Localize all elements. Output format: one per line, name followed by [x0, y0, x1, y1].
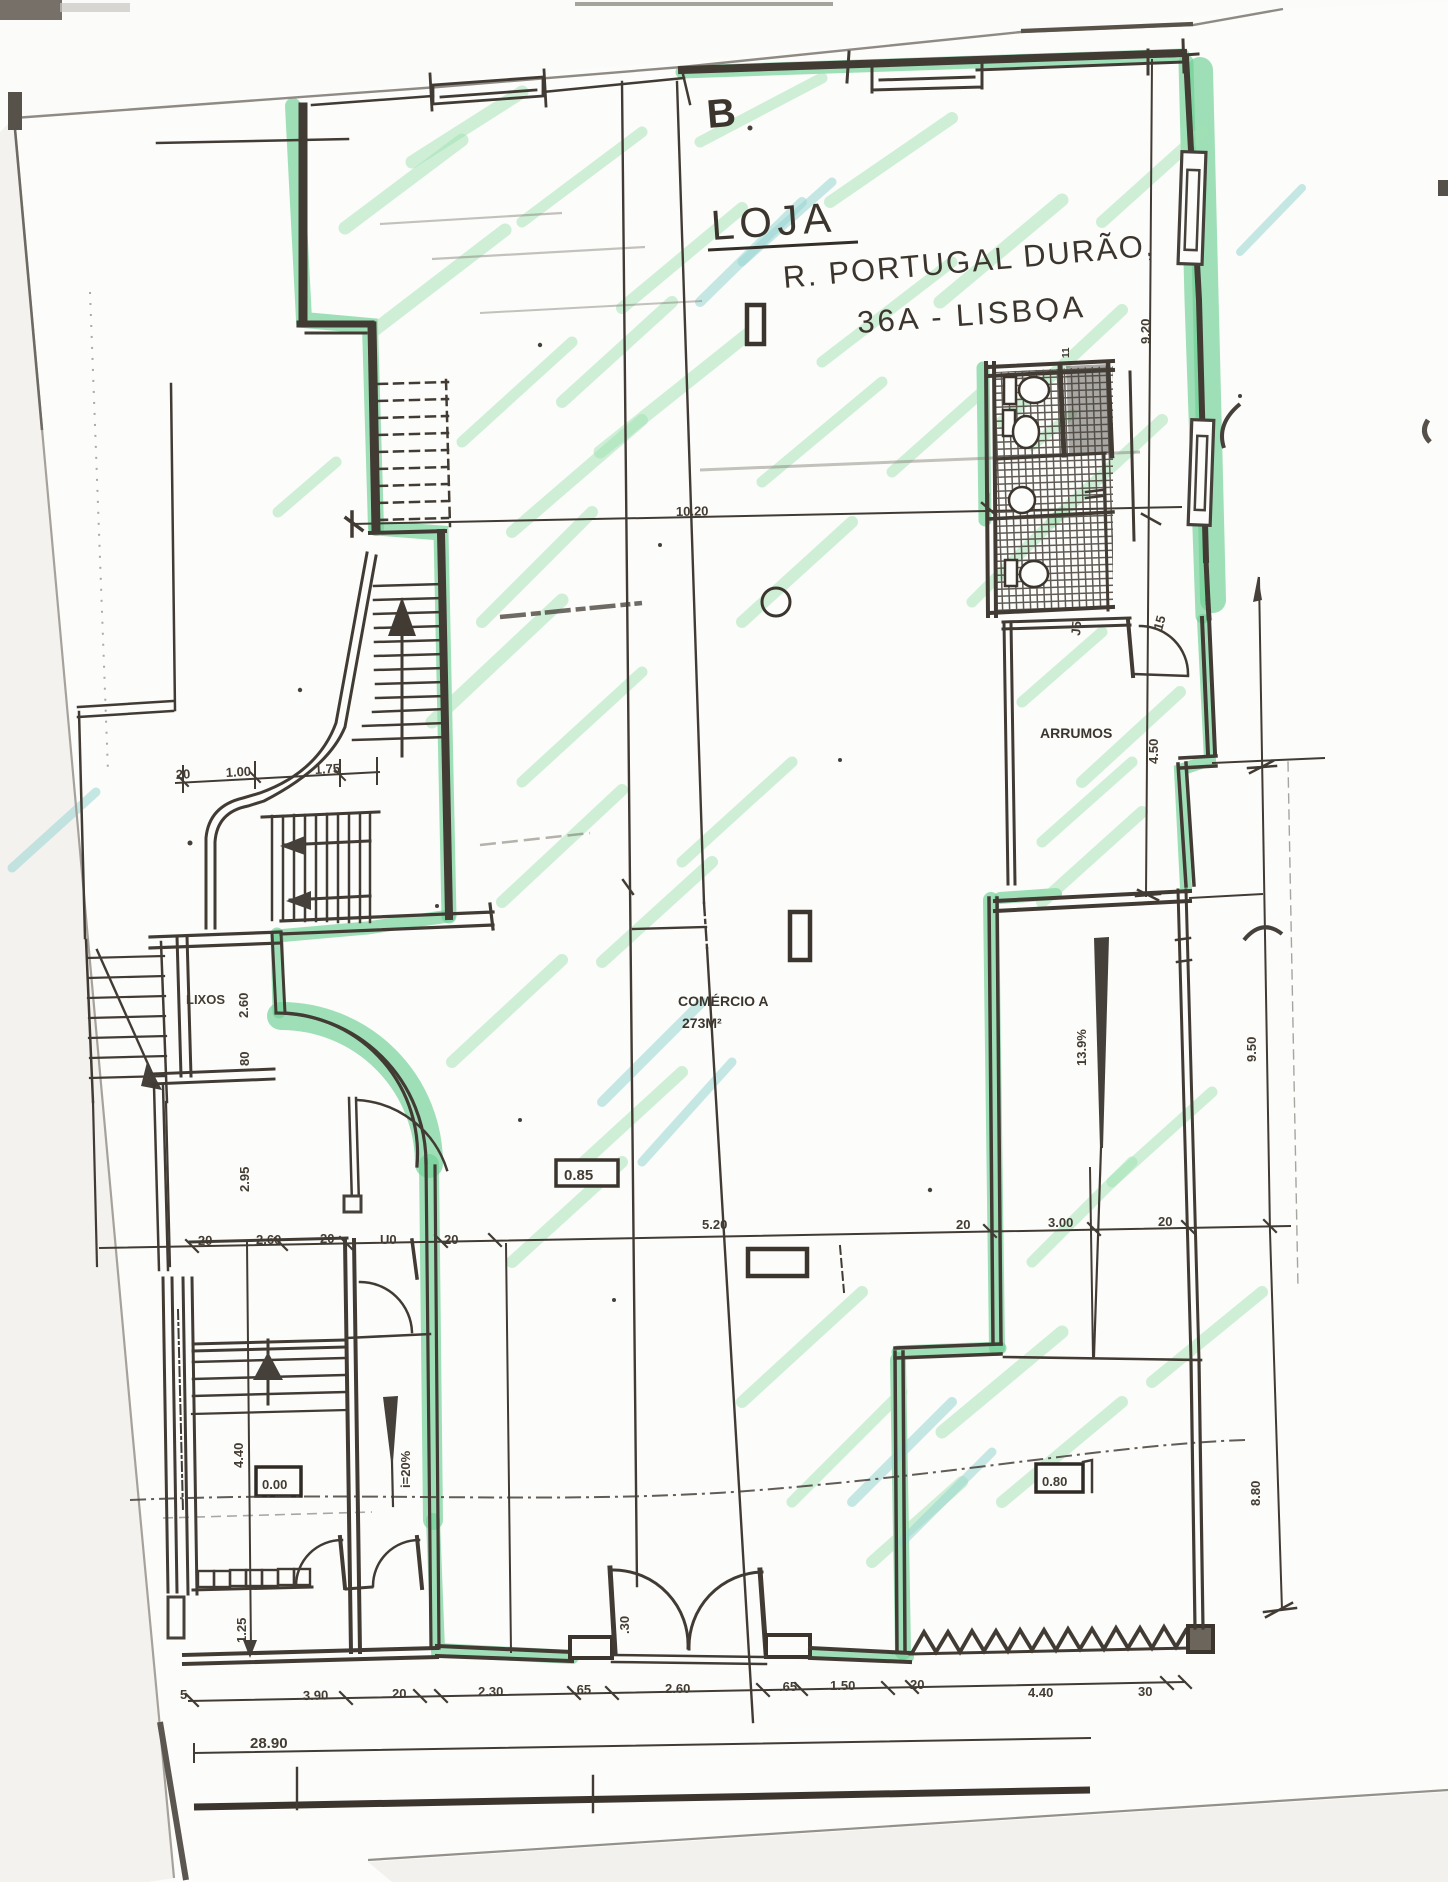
svg-text:20: 20 [392, 1686, 406, 1701]
svg-text:10.20: 10.20 [676, 503, 709, 519]
svg-text:1.00: 1.00 [225, 764, 251, 780]
svg-text:5: 5 [180, 1687, 187, 1702]
svg-text:ARRUMOS: ARRUMOS [1040, 725, 1112, 741]
svg-text:i=20%: i=20% [398, 1450, 413, 1488]
svg-text:2.60: 2.60 [236, 993, 251, 1018]
svg-text:J5: J5 [1068, 621, 1084, 637]
svg-text:20: 20 [910, 1677, 924, 1692]
svg-text:80: 80 [237, 1052, 252, 1066]
svg-text:.65: .65 [779, 1679, 797, 1694]
svg-text:20: 20 [320, 1231, 334, 1246]
svg-text:LOJA: LOJA [709, 193, 837, 249]
svg-text:0.80: 0.80 [1042, 1474, 1067, 1489]
svg-text:2.95: 2.95 [237, 1167, 252, 1192]
svg-text:4.40: 4.40 [1028, 1685, 1053, 1700]
svg-text:20: 20 [1158, 1214, 1172, 1229]
svg-text:273M²: 273M² [682, 1015, 722, 1031]
svg-text:1.75: 1.75 [314, 761, 340, 777]
svg-text:13.9%: 13.9% [1074, 1029, 1089, 1066]
svg-text:.65: .65 [573, 1682, 591, 1697]
svg-text:20: 20 [198, 1233, 213, 1248]
svg-text:2.60: 2.60 [665, 1681, 690, 1696]
svg-text:8.80: 8.80 [1248, 1481, 1263, 1506]
svg-text:30: 30 [1138, 1684, 1152, 1699]
svg-text:11: 11 [1061, 347, 1072, 358]
svg-text:20: 20 [175, 766, 190, 782]
svg-text:B: B [705, 91, 738, 137]
svg-text:1.50: 1.50 [830, 1678, 855, 1693]
svg-text:3.00: 3.00 [1048, 1215, 1073, 1230]
svg-text:4.40: 4.40 [231, 1443, 246, 1468]
svg-text:3.90: 3.90 [303, 1688, 329, 1703]
svg-text:U0: U0 [380, 1232, 397, 1247]
svg-text:5.20: 5.20 [702, 1217, 727, 1232]
svg-text:2.30: 2.30 [478, 1684, 503, 1699]
svg-text:0.85: 0.85 [564, 1167, 593, 1184]
svg-text:2.60: 2.60 [256, 1232, 281, 1247]
svg-text:1.25: 1.25 [234, 1618, 249, 1643]
svg-text:20: 20 [444, 1232, 458, 1247]
svg-text:20: 20 [956, 1217, 970, 1232]
svg-text:LIXOS: LIXOS [186, 992, 225, 1007]
svg-text:9.50: 9.50 [1244, 1037, 1259, 1062]
svg-text:0.00: 0.00 [262, 1477, 287, 1492]
svg-text:9.20: 9.20 [1138, 319, 1153, 344]
svg-text:4.50: 4.50 [1146, 739, 1161, 764]
svg-text:COMÉRCIO A: COMÉRCIO A [678, 993, 768, 1009]
svg-text:28.90: 28.90 [250, 1735, 288, 1752]
svg-text:.30: .30 [617, 1616, 632, 1634]
